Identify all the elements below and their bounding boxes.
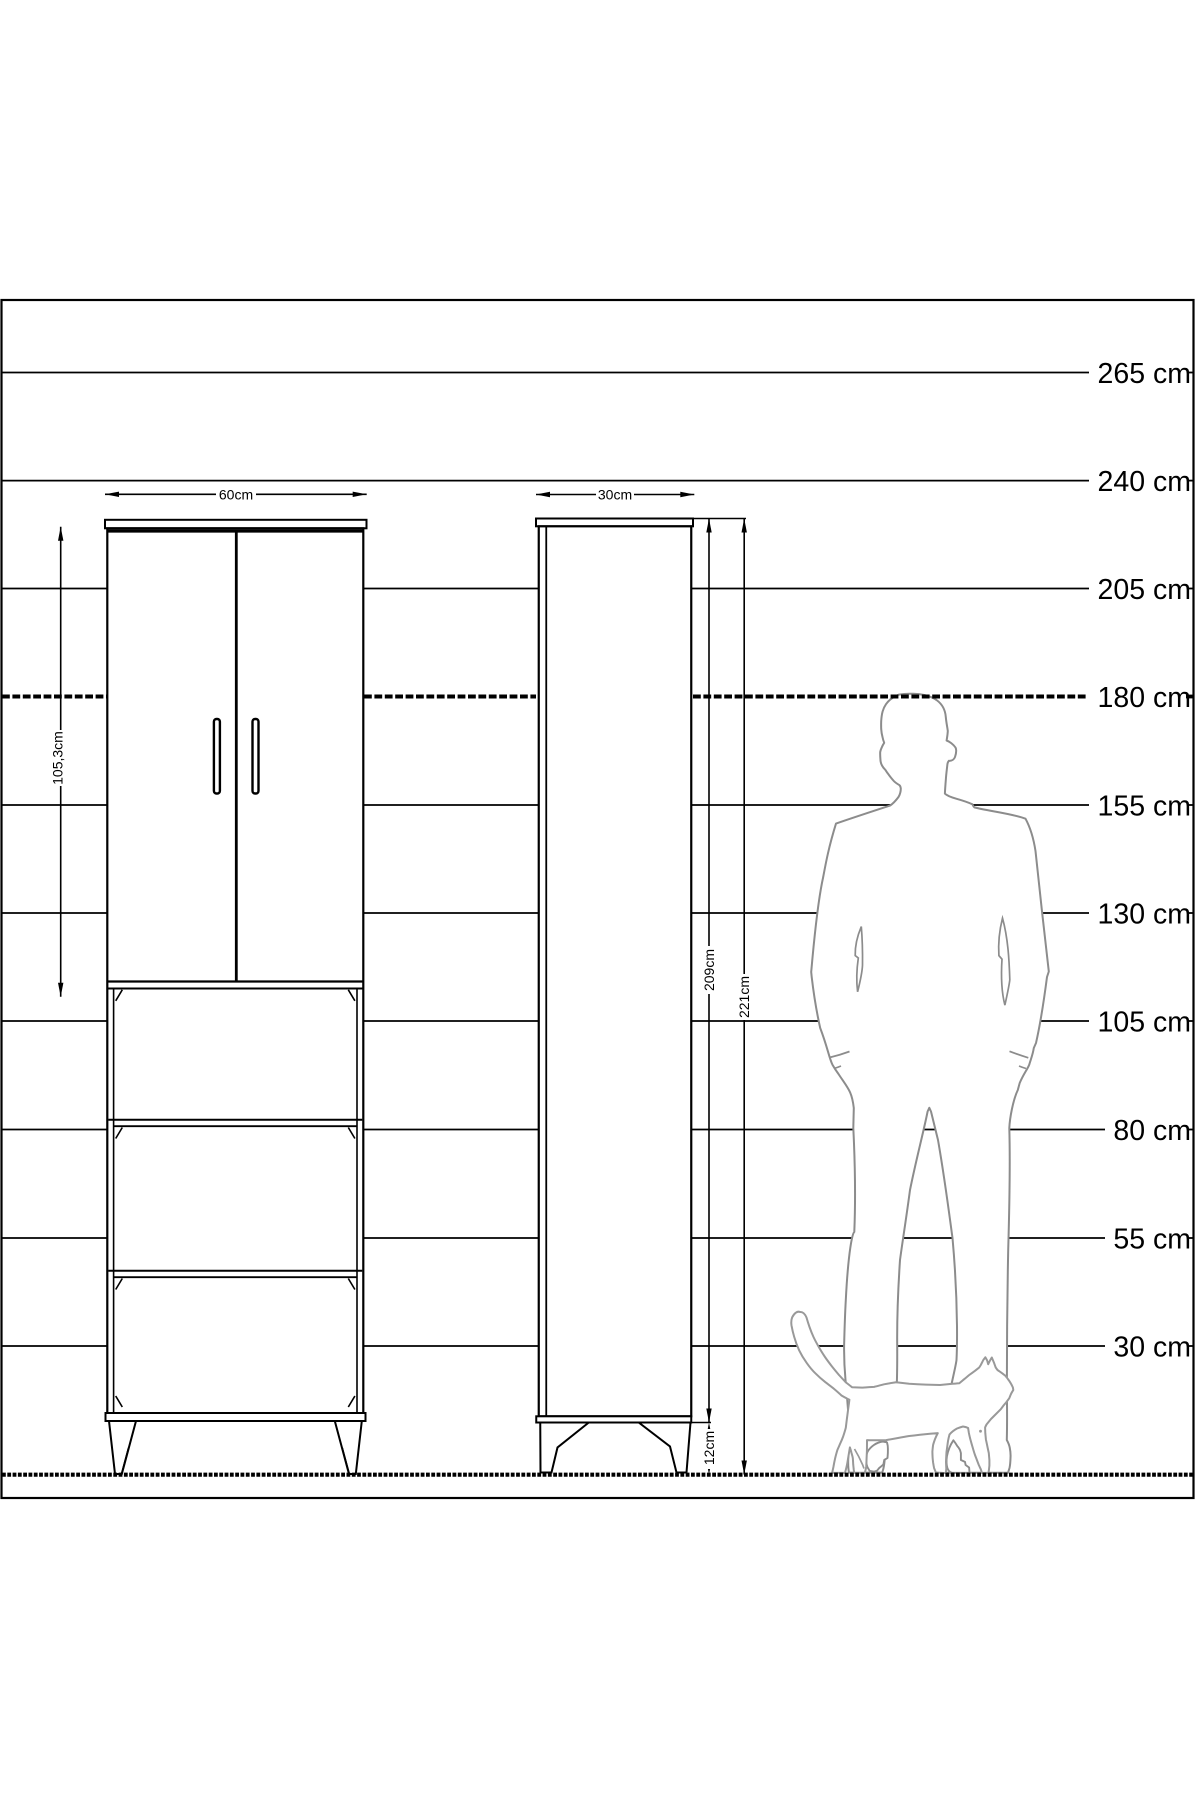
svg-text:105 cm: 105 cm [1098, 1007, 1191, 1039]
svg-text:209cm: 209cm [701, 949, 717, 991]
svg-text:130 cm: 130 cm [1098, 899, 1191, 931]
svg-text:180 cm: 180 cm [1098, 682, 1191, 714]
svg-text:265 cm: 265 cm [1098, 358, 1191, 390]
svg-text:221cm: 221cm [736, 976, 752, 1018]
svg-text:60cm: 60cm [219, 486, 253, 502]
svg-text:30cm: 30cm [598, 487, 632, 503]
svg-text:12cm: 12cm [701, 1431, 717, 1465]
svg-text:240 cm: 240 cm [1098, 466, 1191, 498]
svg-text:30 cm: 30 cm [1113, 1332, 1191, 1364]
svg-text:205 cm: 205 cm [1098, 574, 1191, 606]
svg-text:55 cm: 55 cm [1113, 1224, 1191, 1256]
svg-text:80 cm: 80 cm [1113, 1115, 1191, 1147]
svg-text:155 cm: 155 cm [1098, 791, 1191, 823]
svg-text:105,3cm: 105,3cm [50, 731, 66, 785]
